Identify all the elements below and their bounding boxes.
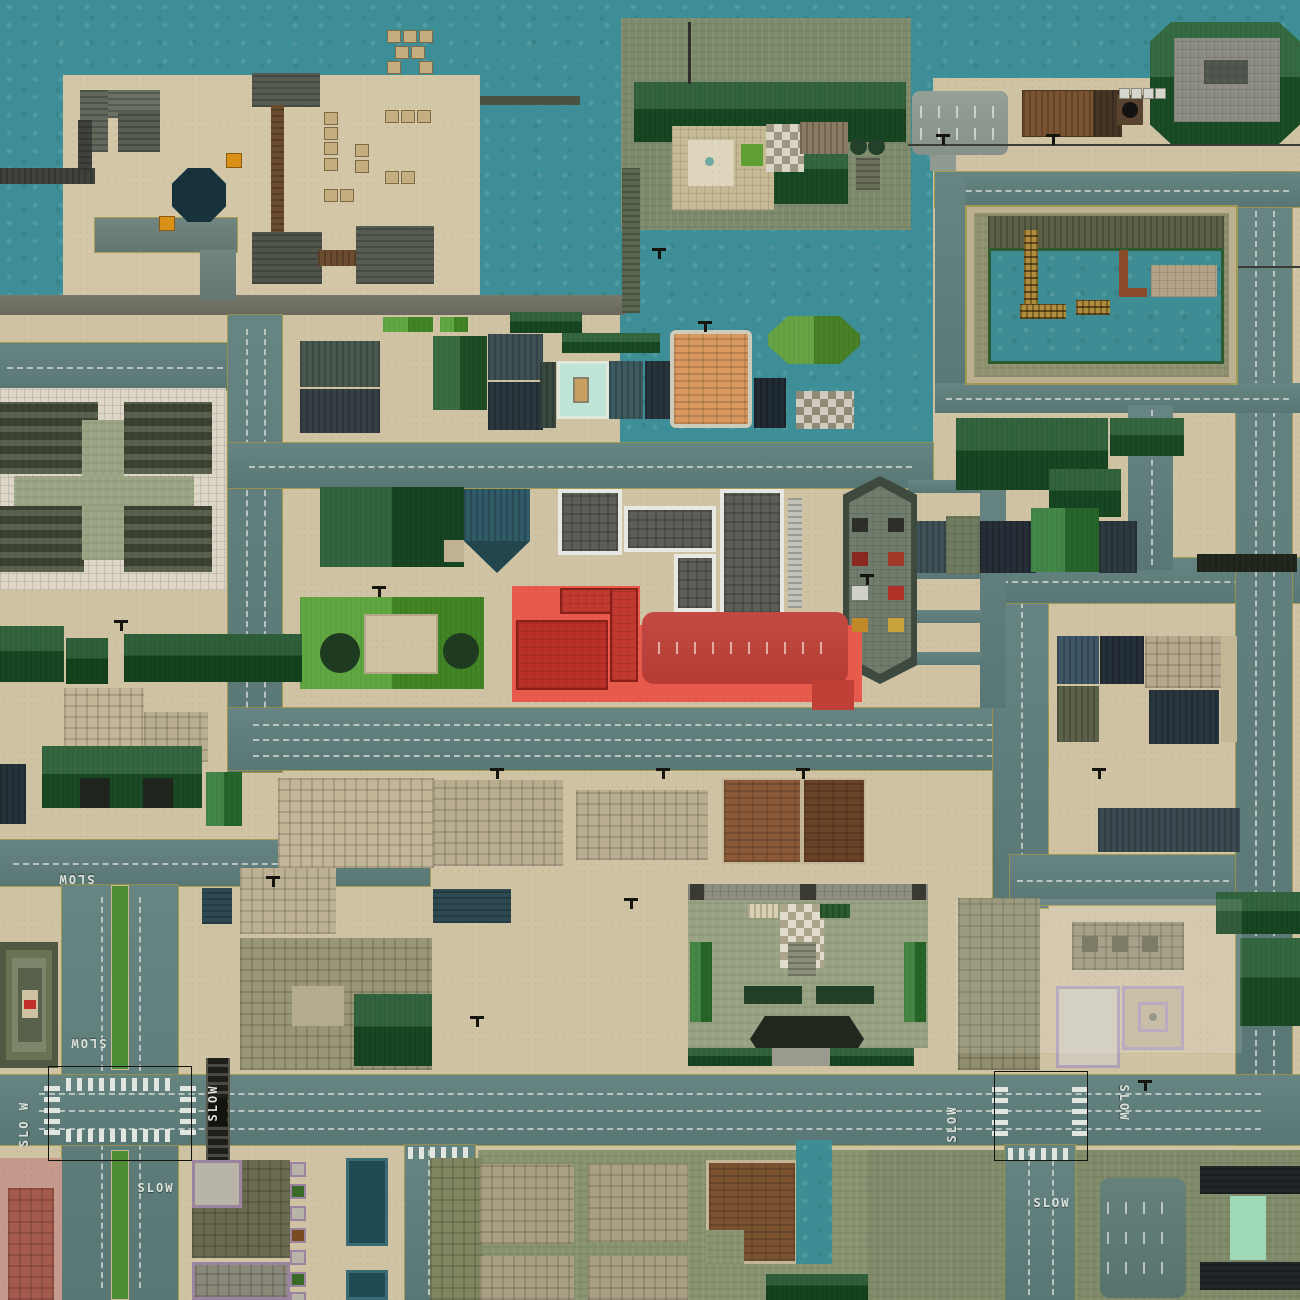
parking-stall-marks bbox=[1107, 1202, 1179, 1214]
green-shed-w2 bbox=[66, 638, 108, 684]
dark-teal-edge bbox=[0, 764, 26, 824]
lamp-post bbox=[796, 768, 810, 771]
dock-warehouse-east bbox=[356, 226, 434, 284]
lamp-post bbox=[114, 620, 128, 623]
big-green-roof-center bbox=[320, 487, 464, 567]
waffle-block-bc4 bbox=[588, 1256, 688, 1300]
railing-east bbox=[788, 498, 802, 608]
lane-divider bbox=[253, 755, 1024, 757]
lamp-post bbox=[1138, 1080, 1152, 1083]
camo-cross-h bbox=[14, 476, 194, 506]
island-pier-south bbox=[622, 168, 640, 313]
waffle-block-bc1 bbox=[480, 1164, 574, 1244]
island-fountain bbox=[705, 157, 714, 166]
crate bbox=[411, 46, 425, 59]
ship-stall-7 bbox=[852, 618, 868, 632]
camo-building-ne bbox=[124, 402, 212, 474]
teal-roof-small bbox=[202, 888, 232, 924]
slate-pair-b2 bbox=[488, 382, 543, 430]
parking-stall-marks bbox=[658, 642, 831, 654]
waffle-block-bc2 bbox=[480, 1256, 574, 1300]
temple-lawn-sw bbox=[688, 1048, 772, 1066]
warehouse-door-2 bbox=[143, 778, 173, 808]
teal-court-2 bbox=[346, 1270, 388, 1300]
temple-green-west bbox=[690, 942, 712, 1022]
ship-stall-5 bbox=[852, 586, 868, 600]
market-plaza-dock bbox=[278, 778, 434, 868]
crane-small bbox=[1076, 300, 1110, 315]
crate bbox=[324, 112, 338, 125]
temple-mat-west bbox=[748, 904, 778, 918]
grass-strip-2 bbox=[440, 317, 468, 332]
lane-divider bbox=[946, 398, 1289, 400]
orange-crate-2 bbox=[159, 216, 175, 231]
crane-tower bbox=[1024, 230, 1038, 314]
lawn-bc-south bbox=[766, 1274, 868, 1300]
framed-building-2 bbox=[624, 506, 716, 552]
canal-pocket bbox=[796, 1140, 832, 1264]
sand-column bbox=[1221, 636, 1237, 742]
crate bbox=[419, 61, 433, 74]
road-label-slow-4: SLOW bbox=[128, 1177, 184, 1199]
road-label-slow-7: SLOW bbox=[941, 1096, 963, 1152]
planter-frame bbox=[290, 1250, 306, 1265]
white-crate bbox=[1119, 88, 1130, 99]
ziggurat-flag bbox=[24, 1000, 36, 1009]
dock-platform-north bbox=[252, 73, 320, 107]
lane-divider bbox=[1028, 1150, 1030, 1296]
olive-cluster bbox=[1057, 686, 1099, 742]
white-crate bbox=[1131, 88, 1142, 99]
crane-arm bbox=[1020, 304, 1066, 319]
ship-access-v8 bbox=[980, 468, 1006, 708]
lamp-post bbox=[470, 1016, 484, 1019]
island-pier-west bbox=[480, 96, 580, 105]
road-label-slow-8: SLOW bbox=[1024, 1192, 1080, 1214]
crate bbox=[387, 30, 401, 43]
plaza-block-mb-a bbox=[240, 868, 336, 934]
temple-lawn-se bbox=[830, 1048, 914, 1066]
clay-court bbox=[670, 330, 752, 428]
lamp-post bbox=[656, 768, 670, 771]
dock-warehouse-south bbox=[252, 232, 322, 284]
planter-frame bbox=[290, 1292, 306, 1300]
crate bbox=[355, 144, 369, 157]
planter-frame bbox=[290, 1206, 306, 1221]
lane-divider bbox=[946, 190, 1289, 192]
temple-green-east bbox=[904, 942, 926, 1022]
pyramid-building-base bbox=[464, 489, 530, 541]
highlight-veil bbox=[956, 899, 1242, 1053]
island-bush-1 bbox=[850, 138, 867, 155]
lamp-post bbox=[266, 876, 280, 879]
crate bbox=[401, 171, 415, 184]
green-warehouse-2 bbox=[42, 746, 202, 808]
lavender-building-bl2 bbox=[192, 1262, 290, 1300]
ship-stall-8 bbox=[888, 618, 904, 632]
power-line-1 bbox=[908, 144, 1300, 146]
sage-building-r bbox=[946, 516, 980, 574]
helipad-octagon bbox=[172, 168, 226, 222]
slate-pair-a2 bbox=[300, 389, 380, 433]
brick-building-e bbox=[802, 778, 866, 864]
selection-rect-west bbox=[48, 1066, 192, 1161]
fence-bridge-dark bbox=[1197, 554, 1297, 572]
lamp-post bbox=[652, 248, 666, 251]
framed-building-1 bbox=[558, 489, 622, 555]
planter-green bbox=[290, 1184, 306, 1199]
ship-stall-3 bbox=[852, 552, 868, 566]
crate bbox=[417, 110, 431, 123]
camo-building-se bbox=[124, 506, 212, 572]
island-mast bbox=[688, 22, 691, 84]
lawn-br-2 bbox=[1240, 938, 1300, 1026]
sand-waffle-cluster bbox=[1145, 636, 1221, 688]
green-roof-mb bbox=[354, 994, 432, 1066]
crate bbox=[385, 171, 399, 184]
dark-band-br-1 bbox=[1200, 1166, 1300, 1194]
lamp-post bbox=[936, 134, 950, 137]
hedge-dark-2 bbox=[562, 333, 660, 353]
slate-pair-a1 bbox=[300, 341, 380, 387]
green-warehouse-long bbox=[124, 634, 302, 682]
ship-stall-1 bbox=[852, 518, 868, 532]
ship-stall-6 bbox=[888, 586, 904, 600]
navy-building-r1 bbox=[980, 521, 1036, 573]
temple-hedge-east bbox=[816, 986, 874, 1004]
cabin-well bbox=[1122, 102, 1138, 118]
island-grass-square bbox=[739, 142, 765, 168]
mint-building-br bbox=[1230, 1196, 1266, 1260]
green-shed-w1 bbox=[0, 626, 64, 682]
crate bbox=[401, 110, 415, 123]
island-steps bbox=[856, 158, 880, 190]
lane-divider bbox=[1017, 880, 1229, 882]
warehouse-door-1 bbox=[80, 778, 110, 808]
temple-steps bbox=[788, 942, 816, 976]
brick-building-w bbox=[722, 778, 802, 864]
construction-platform bbox=[1151, 265, 1217, 297]
road-center-v1 bbox=[228, 315, 282, 772]
island-roof-brown bbox=[800, 122, 848, 154]
road-label-slow-5: SLOW bbox=[202, 1075, 224, 1131]
pink-building-court bbox=[8, 1188, 54, 1300]
pool-court bbox=[573, 377, 589, 403]
grass-strip-1 bbox=[383, 317, 433, 332]
red-building-L-side bbox=[610, 588, 638, 682]
construction-loop-bottom bbox=[935, 383, 1300, 413]
crate bbox=[355, 160, 369, 173]
crate bbox=[419, 30, 433, 43]
road-south-v7 bbox=[1005, 1145, 1075, 1300]
framed-building-3 bbox=[720, 489, 784, 617]
brown-L-notch bbox=[706, 1230, 744, 1264]
planter-green bbox=[290, 1272, 306, 1287]
temple-pillar-e bbox=[912, 884, 926, 900]
lamp-post bbox=[698, 321, 712, 324]
rust-pipe-h bbox=[1119, 288, 1147, 297]
lawn-right-2 bbox=[1110, 418, 1184, 456]
slate-pool-1 bbox=[609, 361, 643, 419]
lamp-post bbox=[372, 586, 386, 589]
crate bbox=[385, 110, 399, 123]
road-center-h3 bbox=[228, 443, 933, 488]
wood-cabin bbox=[1022, 90, 1094, 137]
road-label-slow-6: SLOW bbox=[1113, 1075, 1135, 1131]
construction-loop-top bbox=[935, 172, 1300, 207]
lane-divider bbox=[253, 739, 1024, 741]
red-parking-lot bbox=[642, 612, 848, 684]
crate bbox=[395, 46, 409, 59]
hedge-dark-1 bbox=[510, 312, 582, 333]
green-square-small bbox=[206, 772, 242, 826]
temple-pillar-w bbox=[690, 884, 704, 900]
road-label-slow-3: SLO W bbox=[13, 1096, 35, 1152]
temple-mat-east bbox=[820, 904, 850, 918]
road-main-h4 bbox=[228, 708, 1048, 770]
road-right-h9 bbox=[1010, 855, 1236, 905]
crate bbox=[403, 30, 417, 43]
ship-stall-2 bbox=[888, 518, 904, 532]
warehouse-angle-tip bbox=[118, 112, 160, 152]
road-label-slow-1: SLOW bbox=[48, 868, 104, 890]
planter-frame bbox=[290, 1162, 306, 1177]
lamp-post bbox=[1092, 768, 1106, 771]
checker-patio bbox=[796, 391, 854, 429]
parking-stall-marks bbox=[1107, 1262, 1179, 1274]
lamp-post bbox=[860, 574, 874, 577]
white-crate bbox=[1155, 88, 1166, 99]
slate-row-low bbox=[1098, 808, 1240, 852]
crate bbox=[324, 142, 338, 155]
plaza-block-s1 bbox=[433, 780, 563, 866]
lamp-post bbox=[490, 768, 504, 771]
temple-hedge-west bbox=[744, 986, 802, 1004]
teal-court-1 bbox=[346, 1158, 388, 1246]
orange-crate-1 bbox=[226, 153, 242, 168]
navy-cluster-1 bbox=[1100, 636, 1144, 684]
ship-stall-4 bbox=[888, 552, 904, 566]
crate bbox=[387, 61, 401, 74]
dock-inner-road-v bbox=[200, 250, 236, 300]
crate bbox=[340, 189, 354, 202]
park-plaza bbox=[364, 614, 438, 674]
lamp-post bbox=[624, 898, 638, 901]
hedge-octagon bbox=[768, 316, 860, 364]
ship-stub-4 bbox=[908, 610, 982, 623]
parking-stall-marks bbox=[1107, 1232, 1179, 1244]
parking-stall-marks bbox=[920, 106, 1001, 118]
pier-west-h bbox=[0, 168, 95, 184]
selection-rect-east bbox=[994, 1071, 1088, 1161]
city-map-canvas[interactable]: SLOWSLOWSLO WSLOWSLOWSLOWSLOWSLOW bbox=[0, 0, 1300, 1300]
red-parking-driveway bbox=[812, 680, 854, 710]
navy-building-pool bbox=[754, 378, 786, 428]
white-crate bbox=[1143, 88, 1154, 99]
navy-building-r2 bbox=[1099, 521, 1137, 573]
lamp-post bbox=[1046, 134, 1060, 137]
sea-left bbox=[0, 0, 68, 305]
lawn-striped-r bbox=[1031, 508, 1099, 572]
median-strip-south bbox=[111, 1150, 129, 1300]
navy-cluster-2 bbox=[1149, 690, 1219, 744]
dark-band-br-2 bbox=[1200, 1262, 1300, 1290]
crate bbox=[324, 189, 338, 202]
road-label-slow-2: SLOW bbox=[60, 1032, 116, 1054]
island-bush-2 bbox=[868, 138, 885, 155]
lane-divider bbox=[246, 329, 248, 759]
planter-green bbox=[290, 1228, 306, 1243]
park-bush-west bbox=[320, 633, 360, 673]
construction-loop-left bbox=[935, 172, 965, 413]
temple-pillar-c bbox=[800, 884, 816, 900]
framed-building-4 bbox=[674, 554, 716, 612]
red-building-main bbox=[516, 620, 608, 690]
parking-lot-br bbox=[1100, 1178, 1186, 1298]
lane-divider bbox=[253, 724, 1024, 726]
slate-pair-b1 bbox=[488, 334, 543, 380]
sage-waffle-bl bbox=[430, 1158, 482, 1300]
building-top-right-vent bbox=[1204, 60, 1248, 84]
parking-stall-marks bbox=[920, 128, 1001, 140]
pyramid-annex bbox=[444, 540, 464, 562]
park-bush-east bbox=[443, 633, 479, 669]
temple-gate-stub bbox=[772, 1048, 830, 1066]
camo-building-sw bbox=[0, 506, 84, 572]
green-building-a bbox=[433, 336, 487, 410]
slate-cluster-1 bbox=[1057, 636, 1099, 684]
crate bbox=[324, 127, 338, 140]
lane-divider bbox=[1052, 1150, 1054, 1296]
parking-north-stub bbox=[930, 155, 956, 171]
lane-divider bbox=[264, 329, 266, 759]
crate bbox=[324, 158, 338, 171]
plaza-block-s2 bbox=[576, 790, 708, 860]
waffle-block-bc3 bbox=[588, 1164, 688, 1242]
ship-stub-5 bbox=[908, 652, 982, 665]
lane-divider bbox=[249, 466, 912, 468]
pier-west-v bbox=[78, 120, 92, 170]
island-checker-court bbox=[766, 124, 804, 172]
lane-divider bbox=[7, 367, 223, 369]
lavender-building-bl bbox=[192, 1160, 242, 1208]
teal-pool-roof bbox=[433, 889, 511, 923]
plaza-mb-court bbox=[292, 986, 344, 1026]
road-west-h2 bbox=[0, 343, 230, 390]
pool-side-slab bbox=[540, 362, 556, 428]
